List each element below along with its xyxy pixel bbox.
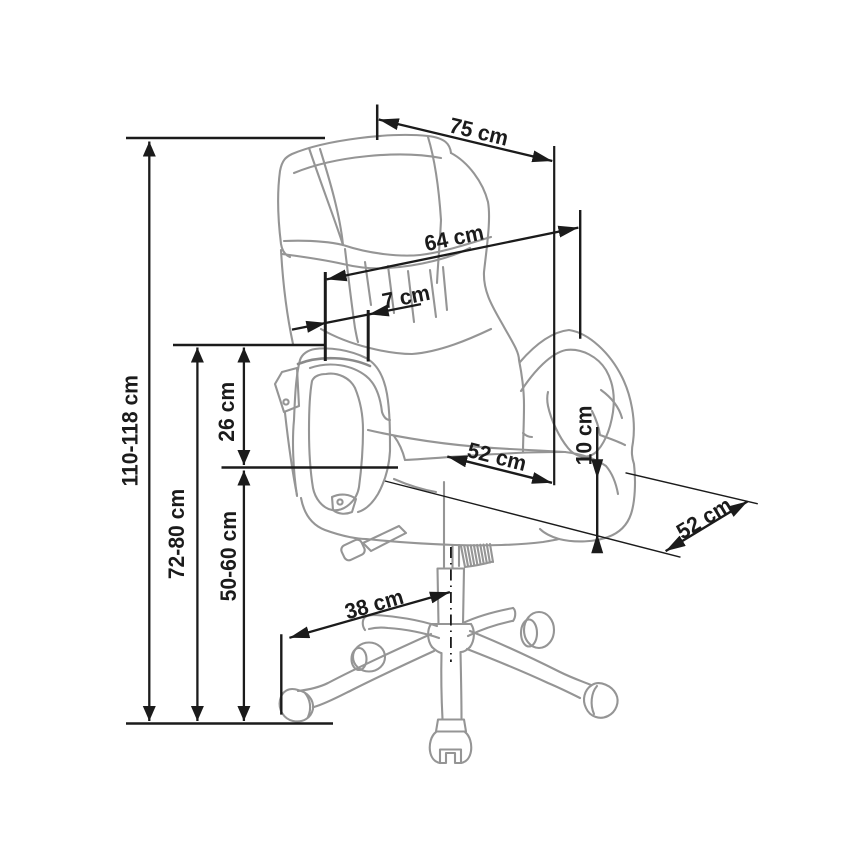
svg-text:110-118 cm: 110-118 cm [117, 375, 143, 486]
svg-text:50-60 cm: 50-60 cm [215, 511, 241, 601]
svg-text:52 cm: 52 cm [672, 492, 736, 545]
svg-text:38 cm: 38 cm [342, 584, 407, 625]
svg-text:10 cm: 10 cm [571, 406, 597, 466]
svg-text:26 cm: 26 cm [213, 382, 239, 442]
svg-text:75 cm: 75 cm [447, 112, 511, 151]
svg-text:72-80 cm: 72-80 cm [164, 489, 190, 579]
svg-text:7 cm: 7 cm [380, 279, 432, 313]
svg-text:64 cm: 64 cm [422, 219, 486, 256]
